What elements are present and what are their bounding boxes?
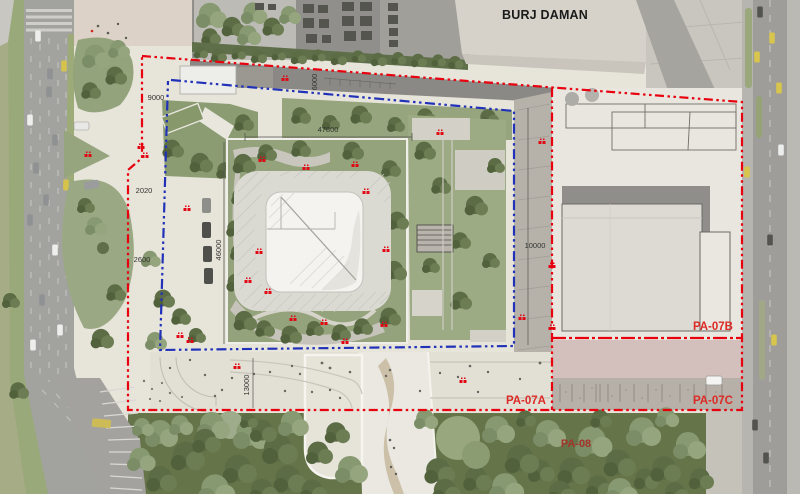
svg-text:10000: 10000 — [525, 241, 546, 250]
svg-text:PA-07C: PA-07C — [693, 395, 733, 407]
svg-text:9000: 9000 — [148, 93, 165, 102]
svg-text:2020: 2020 — [136, 186, 153, 195]
svg-text:46000: 46000 — [214, 240, 223, 261]
svg-text:47800: 47800 — [318, 125, 339, 134]
svg-text:2600: 2600 — [134, 255, 151, 264]
svg-text:13000: 13000 — [242, 375, 251, 396]
svg-text:PA-08: PA-08 — [561, 438, 591, 450]
svg-text:BURJ DAMAN: BURJ DAMAN — [502, 8, 588, 22]
svg-text:6000: 6000 — [310, 74, 319, 91]
svg-text:PA-07A: PA-07A — [506, 395, 546, 407]
svg-text:PA-07B: PA-07B — [693, 321, 733, 333]
